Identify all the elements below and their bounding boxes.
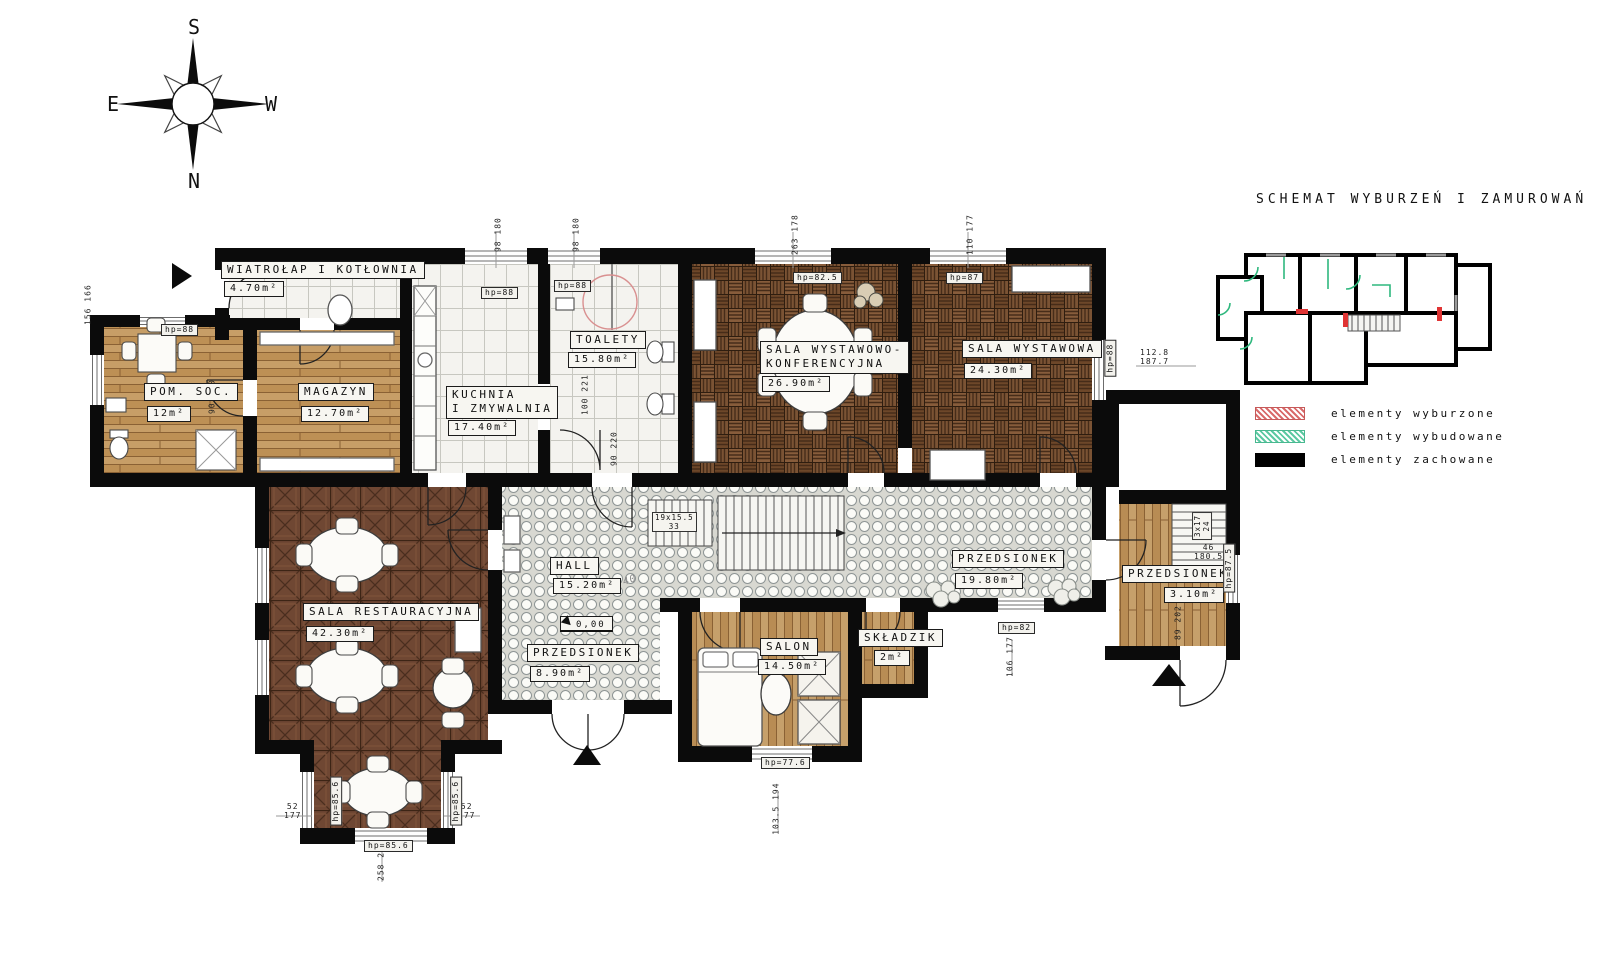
stair-note-side: 3x17 24: [1192, 512, 1212, 540]
stair-note-main: 19x15.5 33: [652, 512, 697, 532]
hp-label: hp=82.5: [793, 272, 842, 284]
room-area-przedsionek-1980: 19.80m²: [955, 573, 1023, 589]
legend-item-built: elementy wybudowane: [1255, 425, 1504, 448]
room-area-przedsionek-310: 3.10m²: [1164, 587, 1224, 603]
dimension: 110 177: [965, 213, 974, 257]
entrance-arrow-icon: [1152, 664, 1186, 686]
legend-swatch-built-icon: [1255, 430, 1305, 443]
room-label-pom-soc: POM. SOC.: [144, 383, 238, 401]
dimension: 52 177: [284, 802, 301, 820]
room-label-toalety: TOALETY: [570, 331, 646, 349]
dimension: 100 221: [580, 374, 589, 416]
room-area-hall: 15.20m²: [553, 578, 621, 594]
room-area-salon: 14.50m²: [758, 659, 826, 675]
legend-label: elementy wyburzone: [1331, 407, 1495, 420]
legend: elementy wyburzone elementy wybudowane e…: [1255, 402, 1504, 471]
dimension: 103.5 194: [771, 781, 780, 837]
room-area-przedsionek-890: 8.90m²: [530, 666, 590, 682]
dimension: 46 180.5: [1194, 543, 1223, 561]
sheet-title: SCHEMAT WYBURZEŃ I ZAMUROWAŃ: [1256, 192, 1587, 207]
room-label-przedsionek-890: PRZEDSIONEK: [527, 644, 639, 662]
room-area-kuchnia: 17.40m²: [448, 420, 516, 436]
dimension: 112.8 187.7: [1140, 348, 1169, 366]
dimension: 156 166: [83, 283, 92, 327]
dimension: 90 220: [609, 429, 618, 469]
hp-label: hp=77.6: [761, 757, 810, 769]
floor-magazyn: [257, 330, 400, 473]
hp-label: hp=88: [481, 287, 518, 299]
room-area-skladzik: 2m²: [874, 650, 910, 666]
kitchen-counter: [414, 286, 436, 470]
hp-label: hp=85.6: [450, 777, 462, 826]
hp-label: hp=88: [161, 324, 198, 336]
entrance-arrow-icon: [172, 263, 192, 289]
dimension: 106 177: [1005, 635, 1014, 679]
room-area-wiatrolap: 4.70m²: [224, 281, 284, 297]
room-area-magazyn: 12.70m²: [301, 406, 369, 422]
room-label-skladzik: SKŁADZIK: [858, 629, 943, 647]
room-label-wiatrolap: WIATROŁAP I KOTŁOWNIA: [221, 261, 425, 279]
room-area-pom-soc: 12m²: [147, 406, 191, 422]
level-marker: 0,00: [560, 616, 613, 632]
room-area-sala-wystawowo-konferencyjna: 26.90m²: [762, 376, 830, 392]
dimension: 89 202: [1173, 603, 1182, 643]
legend-item-demolished: elementy wyburzone: [1255, 402, 1504, 425]
hp-label: hp=85.6: [364, 840, 413, 852]
floor-plan-sheet: S N E W SCHEMAT WYBURZEŃ I ZAMUROWAŃ: [0, 0, 1600, 977]
main-floor-plan: [0, 0, 1600, 977]
hp-label: hp=88: [1104, 340, 1116, 377]
room-label-przedsionek-310: PRZEDSIONEK: [1122, 565, 1234, 583]
room-label-przedsionek-1980: PRZEDSIONEK: [952, 550, 1064, 568]
room-label-sala-restauracyjna: SALA RESTAURACYJNA: [303, 603, 479, 621]
room-label-kuchnia: KUCHNIA I ZMYWALNIA: [446, 386, 558, 419]
room-area-toalety: 15.80m²: [568, 352, 636, 368]
legend-label: elementy zachowane: [1331, 453, 1495, 466]
hp-label: hp=82: [998, 622, 1035, 634]
dimension: 98 180: [571, 215, 580, 255]
dimension: 263 178: [790, 213, 799, 257]
room-label-hall: HALL: [550, 557, 599, 575]
room-area-sala-wystawowa: 24.30m²: [964, 363, 1032, 379]
level-value: 0,00: [576, 620, 606, 630]
legend-swatch-preserved-icon: [1255, 453, 1305, 467]
dimension: 98 180: [493, 215, 502, 255]
room-label-sala-wystawowo-konferencyjna: SALA WYSTAWOWO- KONFERENCYJNA: [760, 341, 909, 374]
level-marker-icon: [561, 615, 574, 628]
room-label-sala-wystawowa: SALA WYSTAWOWA: [962, 340, 1102, 358]
room-label-salon: SALON: [760, 638, 818, 656]
legend-item-preserved: elementy zachowane: [1255, 448, 1504, 471]
hp-label: hp=87: [946, 272, 983, 284]
hp-label: hp=88: [554, 280, 591, 292]
legend-label: elementy wybudowane: [1331, 430, 1504, 443]
legend-swatch-demolished-icon: [1255, 407, 1305, 420]
room-label-magazyn: MAGAZYN: [298, 383, 374, 401]
room-area-sala-restauracyjna: 42.30m²: [306, 626, 374, 642]
hp-label: hp=87.5: [1223, 544, 1235, 593]
hp-label: hp=85.6: [330, 777, 342, 826]
